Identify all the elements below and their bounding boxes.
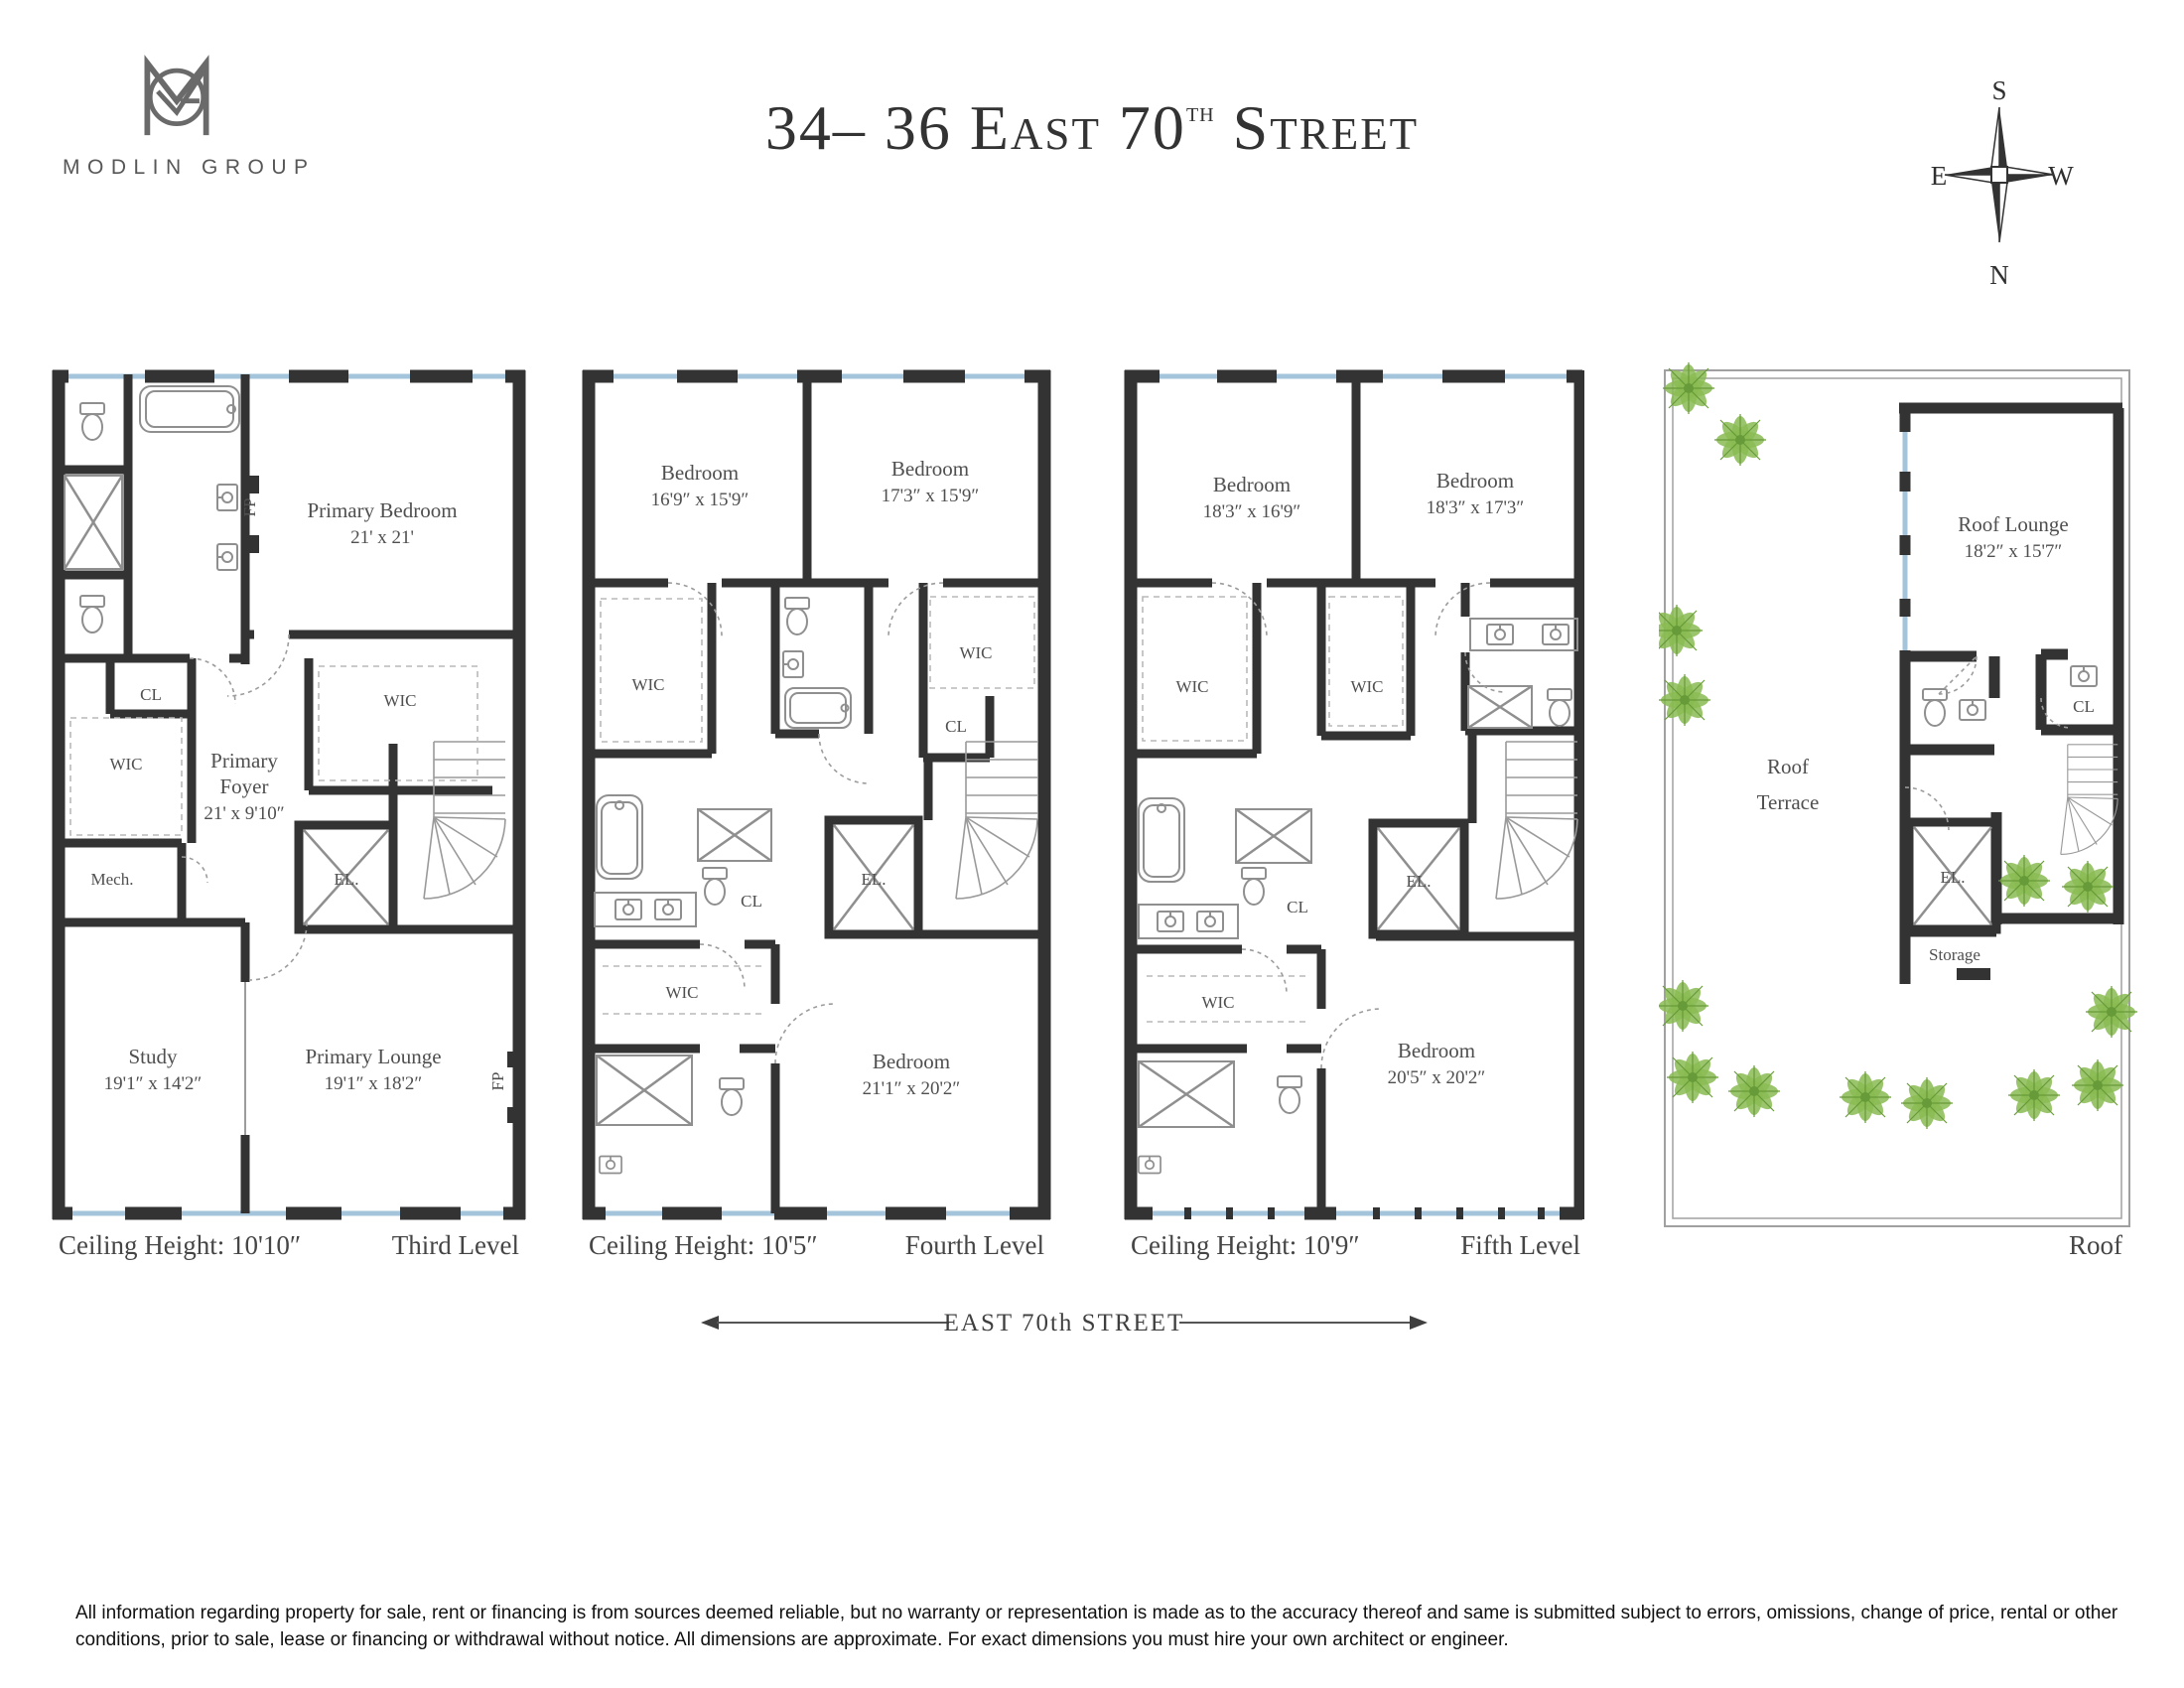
fireplace-niches	[247, 476, 520, 1123]
room-label: EL.	[1406, 872, 1431, 891]
bathtub-icon	[785, 688, 851, 728]
bathtub-icon	[1139, 798, 1184, 882]
fixtures	[1139, 619, 1577, 1174]
room-label: CL	[741, 892, 762, 911]
room-label: Bedroom	[873, 1050, 950, 1073]
room-label: Primary Lounge	[305, 1045, 441, 1068]
sink-icon	[1543, 625, 1569, 644]
sink-icon	[1197, 912, 1223, 931]
shower-icon	[597, 1055, 692, 1125]
compass-label-west: W	[2048, 161, 2074, 191]
sink-icon	[615, 900, 641, 919]
room-label: CL	[140, 685, 162, 704]
shower-icon	[698, 809, 771, 861]
level-label: Fourth Level	[905, 1230, 1044, 1260]
sink-icon	[1960, 700, 1985, 720]
room-label: Bedroom	[661, 461, 739, 485]
room-labels: Roof Lounge 18'2″ x 15'7″ CL EL. Storage…	[1757, 512, 2095, 964]
toilet-icon	[1242, 868, 1266, 905]
compass-label-north: N	[1989, 260, 2009, 290]
room-label: WIC	[1201, 993, 1234, 1012]
compass-label-south: S	[1991, 75, 2006, 105]
bathtub-icon	[597, 795, 642, 879]
room-label: Bedroom	[1213, 473, 1291, 496]
title-superscript: th	[1186, 96, 1215, 128]
level-label: Fifth Level	[1460, 1230, 1580, 1260]
room-dim: 17'3″ x 15'9″	[882, 486, 980, 506]
compass-star	[1945, 107, 2054, 242]
floor-plan-page: MODLIN GROUP 34– 36 East 70th Street S E…	[0, 0, 2184, 1688]
plants	[1659, 362, 2137, 1129]
spiral-stair-icon	[2061, 745, 2117, 855]
street-label: EAST 70th STREET	[695, 1303, 1433, 1346]
room-dim: 16'9″ x 15'9″	[651, 490, 750, 510]
sink-icon	[217, 485, 237, 510]
ceiling-height-label: Ceiling Height: 10'9″	[1131, 1230, 1360, 1260]
room-label: CL	[1287, 898, 1308, 916]
sink-icon	[783, 651, 803, 677]
toilet-icon	[1923, 689, 1947, 726]
title-prefix: 34– 36 East 70	[765, 92, 1186, 163]
shower-icon	[1236, 809, 1311, 863]
room-label: Roof	[1767, 755, 1809, 778]
room-dim: 18'3″ x 17'3″	[1427, 497, 1525, 518]
room-label: WIC	[383, 691, 416, 710]
shower-icon	[1139, 1061, 1234, 1127]
room-labels: Bedroom 16'9″ x 15'9″ Bedroom 17'3″ x 15…	[631, 457, 992, 1099]
room-dim: 20'5″ x 20'2″	[1388, 1067, 1486, 1088]
disclaimer-text: All information regarding property for s…	[75, 1601, 2122, 1653]
room-label: CL	[2073, 697, 2095, 716]
toilet-icon	[1548, 689, 1571, 726]
sink-icon	[2071, 666, 2097, 686]
toilet-icon	[785, 598, 809, 634]
floor-plan-fifth-level: Bedroom 18'3″ x 16'9″ Bedroom 18'3″ x 17…	[1123, 368, 1584, 1267]
room-label: EL.	[861, 870, 886, 889]
room-label: WIC	[1350, 677, 1383, 696]
fixtures	[1923, 666, 2097, 726]
room-dim: 21' x 21'	[350, 527, 414, 548]
floor-plan-third-level: Primary Bedroom 21' x 21' CL WIC WIC Pri…	[51, 368, 527, 1267]
room-label: EL.	[1940, 868, 1965, 887]
sink-icon	[600, 1157, 621, 1174]
floor-plan-fourth-level: Bedroom 16'9″ x 15'9″ Bedroom 17'3″ x 15…	[581, 368, 1052, 1267]
spiral-stair-icon	[1496, 742, 1577, 899]
compass-rose-icon: S E W N	[1925, 66, 2074, 294]
ceiling-height-label: Ceiling Height: 10'5″	[589, 1230, 818, 1260]
sink-icon	[1487, 625, 1513, 644]
room-label: Bedroom	[1398, 1039, 1475, 1062]
room-label: WIC	[665, 983, 698, 1002]
title-suffix: Street	[1215, 92, 1420, 163]
room-dim: 18'2″ x 15'7″	[1965, 541, 2063, 562]
toilet-icon	[720, 1078, 744, 1115]
terrace-boundary	[1665, 370, 2129, 1226]
floor-plan-roof: Roof Lounge 18'2″ x 15'7″ CL EL. Storage…	[1659, 360, 2137, 1269]
room-label: Storage	[1929, 945, 1980, 964]
room-label: Primary	[210, 749, 278, 773]
fireplace-label: FP	[240, 498, 259, 517]
fireplace-label: FP	[488, 1072, 507, 1091]
room-label: Bedroom	[1436, 469, 1514, 492]
toilet-icon	[80, 596, 104, 633]
level-label: Roof	[2069, 1230, 2122, 1260]
room-dim: 19'1″ x 14'2″	[104, 1073, 203, 1094]
arrow-right-icon	[1410, 1316, 1428, 1330]
arrow-left-icon	[701, 1316, 719, 1330]
room-label: Mech.	[91, 870, 134, 889]
bathtub-icon	[140, 386, 239, 432]
room-label: Primary Bedroom	[307, 498, 457, 522]
room-label: WIC	[959, 643, 992, 662]
compass-label-east: E	[1931, 161, 1948, 191]
fixtures	[65, 386, 239, 633]
sink-icon	[217, 544, 237, 570]
sink-icon	[1158, 912, 1183, 931]
sink-icon	[655, 900, 681, 919]
room-label: Terrace	[1757, 790, 1820, 814]
spiral-stair-icon	[424, 742, 505, 899]
toilet-icon	[80, 403, 104, 440]
level-label: Third Level	[392, 1230, 519, 1260]
page-title: 34– 36 East 70th Street	[0, 91, 2184, 165]
room-label: EL.	[334, 870, 358, 889]
storage-block	[1957, 968, 1990, 980]
room-label: Study	[128, 1045, 178, 1068]
street-name: EAST 70th STREET	[944, 1310, 1185, 1336]
room-label: Bedroom	[891, 457, 969, 481]
room-label: WIC	[109, 755, 142, 774]
room-label: CL	[945, 717, 967, 736]
room-dim: 18'3″ x 16'9″	[1203, 501, 1301, 522]
toilet-icon	[1278, 1076, 1301, 1113]
ceiling-height-label: Ceiling Height: 10'10″	[59, 1230, 301, 1260]
room-label: Foyer	[220, 774, 269, 798]
room-label: WIC	[631, 675, 664, 694]
room-label: Roof Lounge	[1958, 512, 2068, 536]
room-dim: 21' x 9'10″	[204, 803, 284, 824]
shower-icon	[65, 476, 122, 569]
spiral-stair-icon	[956, 742, 1037, 899]
room-label: WIC	[1175, 677, 1208, 696]
room-dim: 21'1″ x 20'2″	[863, 1078, 961, 1099]
room-dim: 19'1″ x 18'2″	[325, 1073, 423, 1094]
sink-icon	[1139, 1157, 1160, 1174]
toilet-icon	[703, 868, 727, 905]
